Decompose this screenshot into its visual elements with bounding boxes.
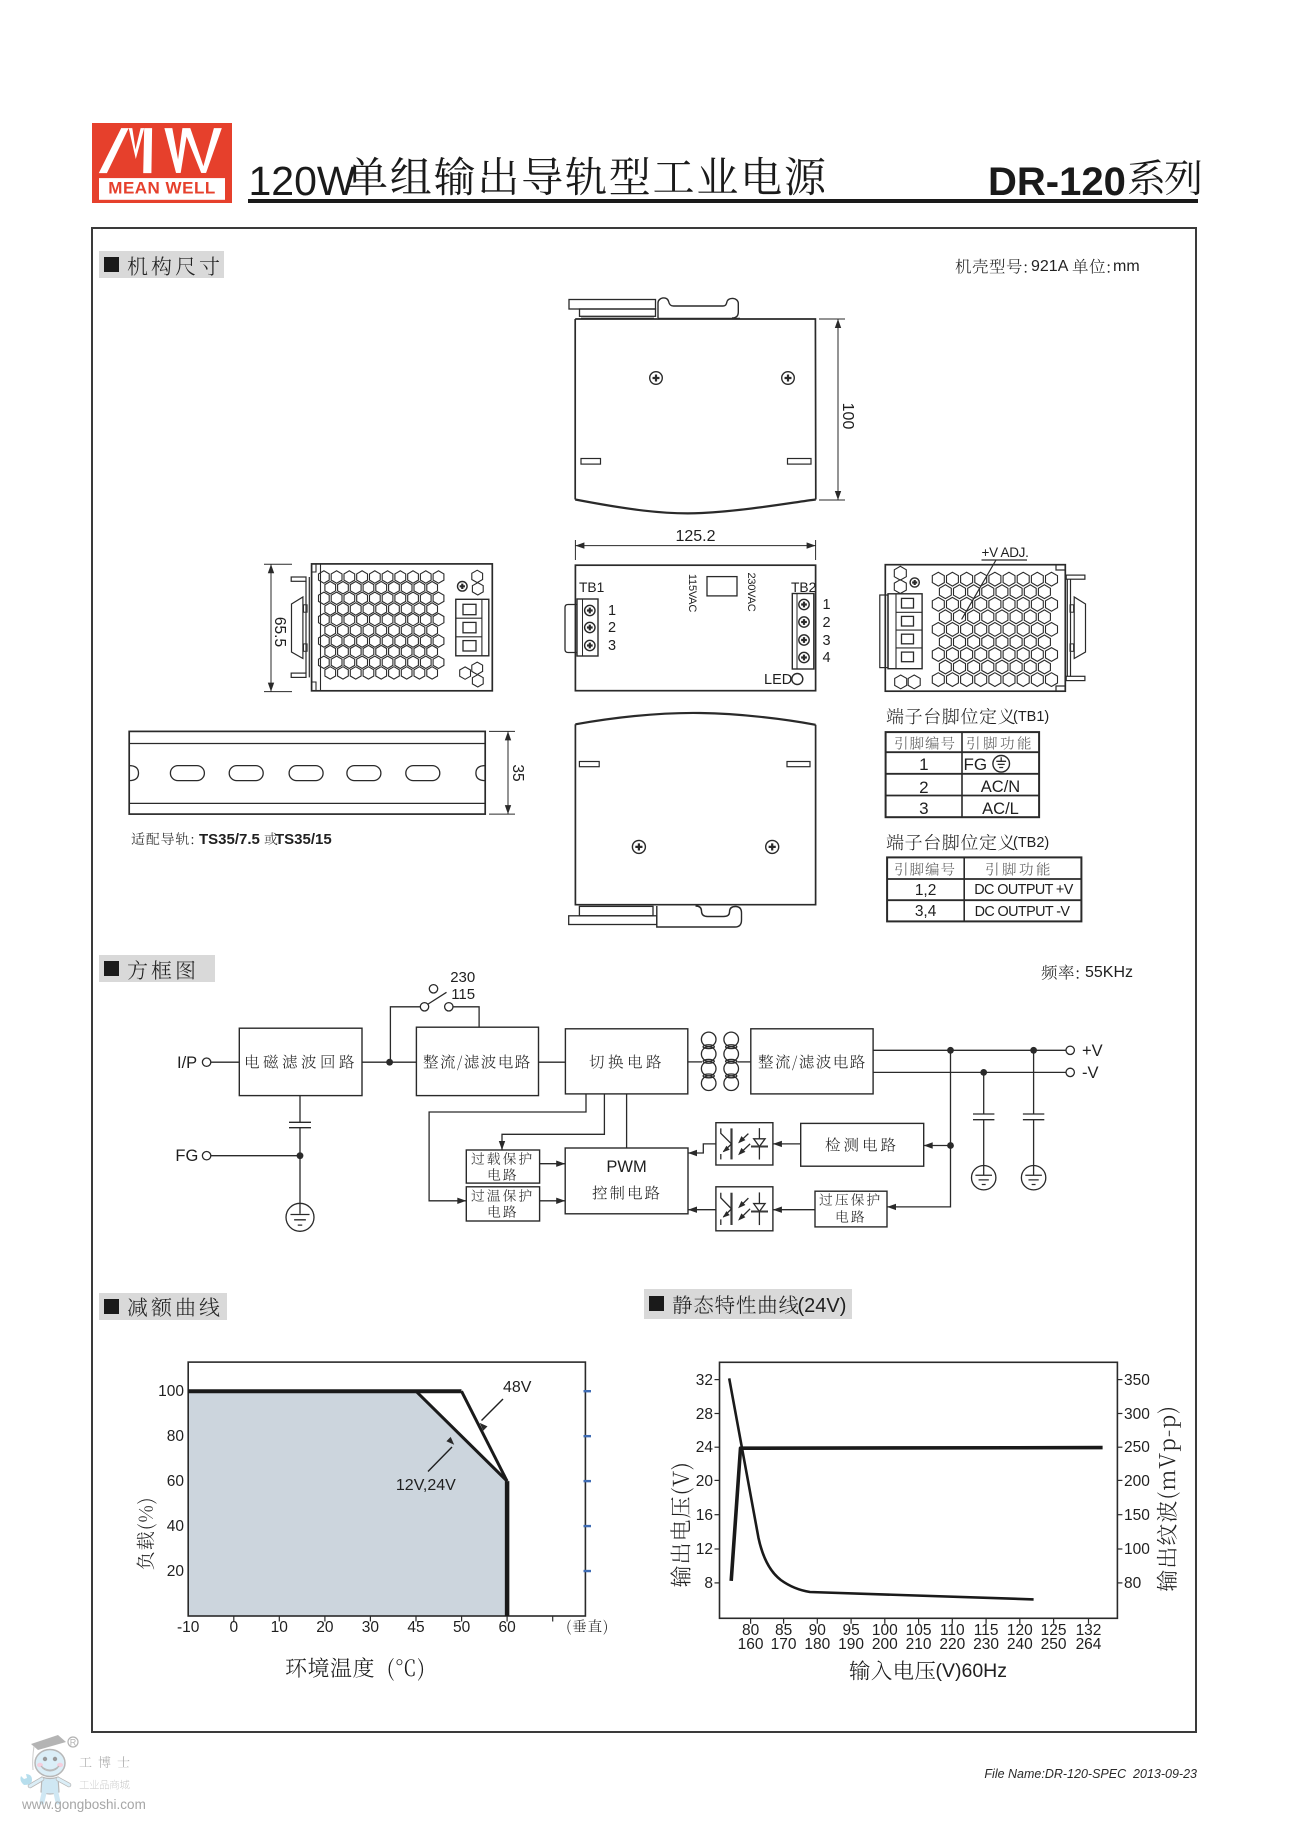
svg-text:R: R [70, 1738, 77, 1748]
